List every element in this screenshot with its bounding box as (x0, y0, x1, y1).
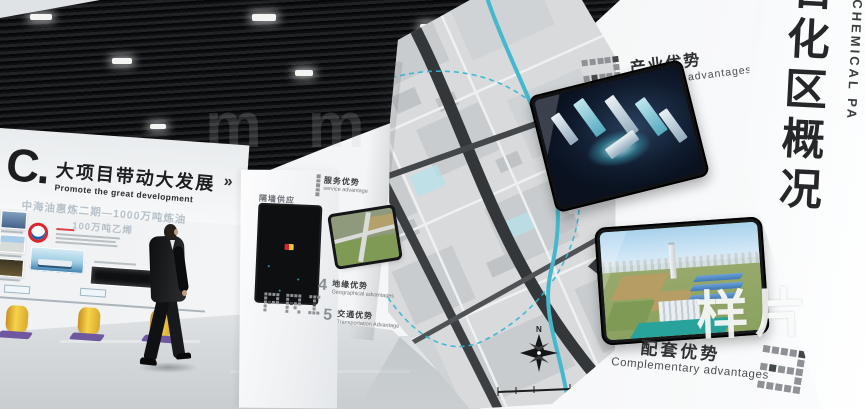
big-letter-c: C. (5, 146, 50, 186)
advantage-item-1: 服务优势 service advantage (315, 174, 369, 199)
person-shoe (176, 352, 191, 359)
screen-light-dot (279, 290, 281, 292)
screen-light-dot (268, 265, 270, 267)
photo-caption-line (0, 278, 20, 282)
timeline-callout (80, 288, 106, 298)
screen-light-dot (297, 278, 299, 280)
partition-display-screen (256, 205, 320, 304)
ceiling-light-icon (112, 58, 132, 64)
item-1-screen (330, 207, 399, 266)
tank-pad (0, 330, 33, 339)
offshore-ship-illustration (29, 246, 85, 274)
svg-text:N: N (536, 325, 542, 334)
pixel-number-1 (315, 174, 320, 196)
ceiling-light-icon (252, 14, 276, 21)
sample-watermark: 样片 (695, 270, 814, 349)
text-line (94, 261, 136, 265)
person-face (174, 229, 178, 235)
exhibit-photo (0, 234, 26, 254)
ceiling-light-icon (295, 70, 313, 76)
exhibit-photo (0, 258, 24, 278)
exhibition-hall-render: m m (0, 0, 866, 409)
ceiling-light-icon (30, 14, 52, 20)
video-logo-icon (284, 244, 293, 250)
storage-tank-icon (77, 307, 101, 335)
photo-caption-line (0, 254, 21, 258)
right-wall-title-en: OCHEMICAL PA (829, 0, 866, 406)
timeline-callout (4, 285, 30, 295)
person-hand (182, 290, 187, 296)
ship-hull (38, 259, 72, 267)
ceiling-light-icon (150, 124, 166, 129)
pixel-text-pri (263, 292, 320, 314)
tank-pad (69, 332, 105, 341)
photo-caption-line (1, 230, 23, 234)
person-leg (143, 297, 170, 361)
walking-person (136, 222, 202, 376)
storage-tank-icon (5, 305, 29, 333)
